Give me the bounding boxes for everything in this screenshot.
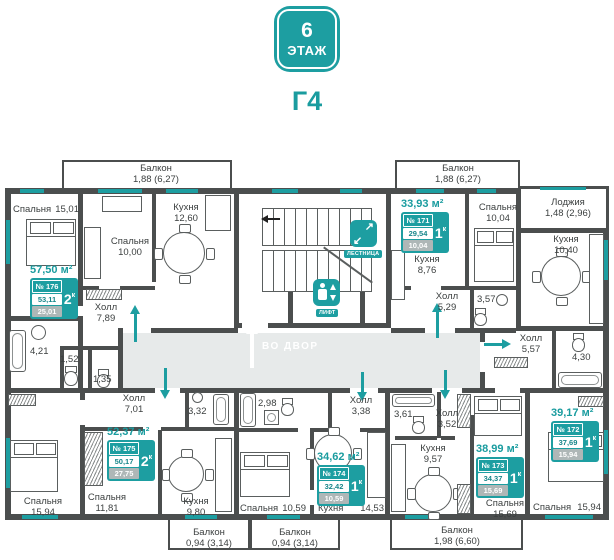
room-label-bedroom: Спальня10,04: [468, 202, 528, 224]
coat-rack: [578, 396, 604, 407]
toilet: [64, 366, 78, 386]
entrance-arrow: [361, 372, 364, 394]
room-label-bathroom: 3,61: [394, 409, 413, 420]
room-label-bathroom: 3,32: [188, 406, 207, 417]
apartment-area-main: 29,54: [403, 228, 433, 239]
wall: [180, 388, 350, 393]
apartment-card-box: № 175 50,17 27,75 2к: [107, 440, 155, 481]
washing-machine: [264, 410, 279, 425]
bed: [10, 440, 58, 492]
wall: [520, 388, 609, 393]
apartment-area-main: 34,37: [478, 473, 508, 484]
apartment-card-171[interactable]: 33,93 м² № 171 29,54 10,04 1к: [401, 198, 463, 253]
wall: [391, 328, 425, 333]
entrance-arrow: [436, 312, 439, 338]
entrance-arrow: [484, 343, 504, 346]
apartment-card-176[interactable]: 57,50 м² № 176 53,11 25,01 2к: [30, 264, 92, 319]
room-label-balcony: Балкон1,88 (6,27): [112, 163, 200, 185]
chair: [306, 448, 315, 460]
room-label-kitchen: Кухня10,40: [538, 234, 594, 256]
kitchen-counter: [391, 444, 406, 512]
apartment-area-living: 10,04: [403, 240, 433, 251]
chair: [206, 248, 215, 260]
window: [166, 189, 198, 193]
sink: [496, 294, 508, 306]
elevator-up-icon: [330, 284, 336, 290]
entrance-arrow: [164, 368, 167, 392]
apartment-total-area: 57,50 м²: [30, 264, 92, 276]
apartment-number: № 175: [109, 442, 139, 455]
exit-arrow: [250, 334, 254, 368]
apartment-rooms-count: 1к: [584, 423, 597, 460]
room-label-bedroom: Спальня15,94: [533, 502, 601, 513]
room-label-loggia: Лоджия1,48 (2,96): [532, 197, 604, 219]
floor-plan: ↗ ↙ ЛЕСТНИЦА ЛИФТ ВО ДВОР: [0, 0, 614, 560]
dining-table: [414, 474, 452, 512]
apartment-card-173[interactable]: 38,99 м² № 173 34,37 15,69 1к: [476, 443, 538, 498]
apartment-card-174[interactable]: 34,62 м² № 174 32,42 10,59 1к: [317, 451, 379, 506]
apartment-area-main: 50,17: [109, 456, 139, 467]
apartment-area-main: 32,42: [319, 481, 349, 492]
wall: [120, 286, 155, 290]
apartment-card-175[interactable]: 52,37 м² № 175 50,17 27,75 2к: [107, 426, 169, 481]
toilet: [412, 416, 425, 434]
wall: [88, 350, 92, 392]
wall: [552, 331, 556, 391]
wall: [462, 388, 495, 393]
apartment-area-living: 27,75: [109, 468, 139, 479]
bathtub: [558, 372, 602, 388]
wall: [80, 392, 85, 400]
stairs-label: ЛЕСТНИЦА: [344, 250, 382, 258]
room-label-hall: Холл5,57: [510, 333, 552, 355]
wall: [310, 505, 314, 514]
bed: [474, 228, 514, 282]
room-label-bathroom: 4,21: [30, 346, 49, 357]
window: [272, 189, 298, 193]
coat-rack: [494, 357, 528, 368]
exit-arrow-head: [246, 324, 258, 334]
wall: [395, 436, 437, 440]
apartment-card-box: № 172 37,69 15,94 1к: [551, 421, 599, 462]
bathtub: [213, 394, 229, 425]
elevator-down-icon: [330, 295, 336, 301]
chair: [556, 297, 568, 306]
wall: [606, 188, 609, 233]
room-label-kitchen: Кухня9,57: [410, 443, 456, 465]
room-label-hall: Холл3,38: [340, 395, 382, 417]
apartment-area-living: 15,94: [553, 449, 583, 460]
entrance-arrow-head: [160, 390, 170, 399]
entrance-arrow-head: [130, 305, 140, 314]
wardrobe: [457, 484, 471, 514]
apartment-number: № 173: [478, 459, 508, 472]
wall: [118, 328, 123, 392]
bed: [474, 396, 522, 436]
apartment-card-172[interactable]: 39,17 м² № 172 37,69 15,94 1к: [551, 407, 613, 462]
room-label-balcony: Балкон1,98 (6,60): [392, 525, 522, 547]
wall: [455, 328, 516, 333]
apartment-card-box: № 171 29,54 10,04 1к: [401, 212, 449, 253]
wall: [310, 432, 314, 490]
apartment-area-living: 10,59: [319, 493, 349, 504]
chair: [407, 488, 416, 500]
wall: [268, 323, 391, 328]
wall: [234, 392, 239, 514]
room-label-bedroom: Спальня10,59: [240, 503, 306, 514]
room-label-bedroom: Спальня15,01: [13, 204, 79, 215]
wall: [441, 286, 465, 290]
wall: [480, 328, 485, 342]
chair: [205, 469, 214, 481]
chair: [428, 467, 440, 476]
window: [98, 189, 142, 193]
chair: [181, 449, 193, 458]
room-label-hall: Холл7,01: [112, 393, 156, 415]
room-label-kitchen: Кухня12,60: [158, 202, 214, 224]
apartment-area-main: 53,11: [32, 294, 62, 305]
apartment-total-area: 38,99 м²: [476, 443, 538, 455]
wall: [328, 392, 332, 428]
chair: [428, 512, 440, 520]
dining-table: [163, 232, 205, 274]
elevator-label: ЛИФТ: [316, 309, 338, 317]
chair: [328, 427, 340, 436]
elevator-person-icon: [318, 289, 327, 300]
bathtub: [9, 330, 26, 372]
staircase-entry-arrow: [268, 218, 280, 220]
window: [340, 189, 362, 193]
toilet: [572, 333, 585, 352]
chair: [179, 224, 191, 233]
room-label-wc: 1,52: [60, 354, 79, 365]
bathtub: [392, 394, 435, 407]
apartment-area-living: 15,69: [478, 485, 508, 496]
toilet: [474, 308, 487, 326]
apartment-area-main: 37,69: [553, 437, 583, 448]
window: [267, 515, 300, 519]
stairs-down-icon: ↙: [353, 234, 362, 247]
wall: [161, 427, 234, 431]
apartment-rooms-count: 1к: [350, 467, 363, 504]
wall: [238, 428, 298, 432]
room-label-wc: 1,35: [93, 374, 112, 385]
room-label-balcony: Балкон0,94 (3,14): [168, 527, 250, 549]
room-label-bathroom: 2,98: [258, 398, 277, 409]
room-label-balcony: Балкон0,94 (3,14): [250, 527, 340, 549]
wall: [151, 328, 238, 333]
bathtub: [240, 393, 256, 427]
wall: [520, 228, 609, 233]
elevator-badge: [313, 279, 340, 306]
bed: [26, 219, 76, 266]
room-label-bathroom: 3,57: [477, 294, 496, 305]
room-label-balcony: Балкон1,88 (6,27): [420, 163, 496, 185]
entrance-arrow-head: [440, 390, 450, 399]
entrance-arrow: [134, 314, 137, 342]
apartment-card-box: № 173 34,37 15,69 1к: [476, 457, 524, 498]
apartment-number: № 176: [32, 280, 62, 293]
chair: [179, 275, 191, 284]
room-label-bedroom: Спальня11,81: [82, 492, 132, 514]
sink: [31, 325, 46, 340]
room-label-kitchen: Кухня8,76: [404, 254, 450, 276]
apartment-total-area: 52,37 м²: [107, 426, 169, 438]
coat-rack: [8, 394, 36, 406]
window: [6, 220, 10, 264]
apartment-card-box: № 174 32,42 10,59 1к: [317, 465, 365, 506]
window: [540, 187, 586, 190]
apartment-number: № 171: [403, 214, 433, 227]
chair: [532, 271, 541, 283]
window: [604, 240, 608, 280]
dining-table: [168, 456, 204, 492]
room-label-hall: Холл5,29: [425, 291, 469, 313]
wall: [5, 388, 118, 393]
dining-table: [541, 256, 581, 296]
wall: [441, 436, 455, 440]
room-label-bedroom: Спальня15,94: [12, 496, 74, 518]
room-label-bathroom: 4,30: [572, 352, 591, 363]
apartment-rooms-count: 2к: [140, 442, 153, 479]
wall: [516, 326, 609, 331]
entrance-arrow: [444, 370, 447, 392]
wall: [234, 188, 239, 328]
apartment-number: № 174: [319, 467, 349, 480]
apartment-total-area: 39,17 м²: [551, 407, 613, 419]
apartment-rooms-count: 1к: [509, 459, 522, 496]
apartment-number: № 172: [553, 423, 583, 436]
apartment-area-living: 25,01: [32, 306, 62, 317]
room-label-bedroom: Спальня15,69: [478, 498, 532, 520]
room-label-bedroom: Спальня10,00: [98, 236, 162, 258]
apartment-rooms-count: 2к: [63, 280, 76, 317]
room-label-hall: Холл3,52: [426, 408, 468, 430]
apartment-card-box: № 176 53,11 25,01 2к: [30, 278, 78, 319]
window: [20, 189, 44, 193]
sink: [192, 392, 203, 403]
window: [545, 515, 593, 519]
desk: [102, 196, 142, 212]
exit-label: ВО ДВОР: [262, 341, 319, 352]
apartment-total-area: 33,93 м²: [401, 198, 463, 210]
apartment-total-area: 34,62 м²: [317, 451, 379, 463]
window: [477, 189, 496, 193]
window: [416, 189, 444, 193]
apartment-rooms-count: 1к: [434, 214, 447, 251]
floor-plan-page: { "header": { "floor_number": "6", "floo…: [0, 0, 614, 560]
staircase-entry-arrowhead: [261, 215, 268, 223]
stairs-badge: ↗ ↙: [350, 220, 377, 247]
elevator-person-icon: [320, 283, 325, 288]
toilet: [281, 398, 294, 416]
stairs-up-icon: ↗: [365, 220, 374, 233]
kitchen-counter: [391, 250, 405, 300]
wardrobe: [84, 432, 103, 486]
wall: [78, 316, 83, 392]
bed: [240, 452, 290, 497]
room-label-kitchen: Кухня9,80: [172, 496, 220, 518]
